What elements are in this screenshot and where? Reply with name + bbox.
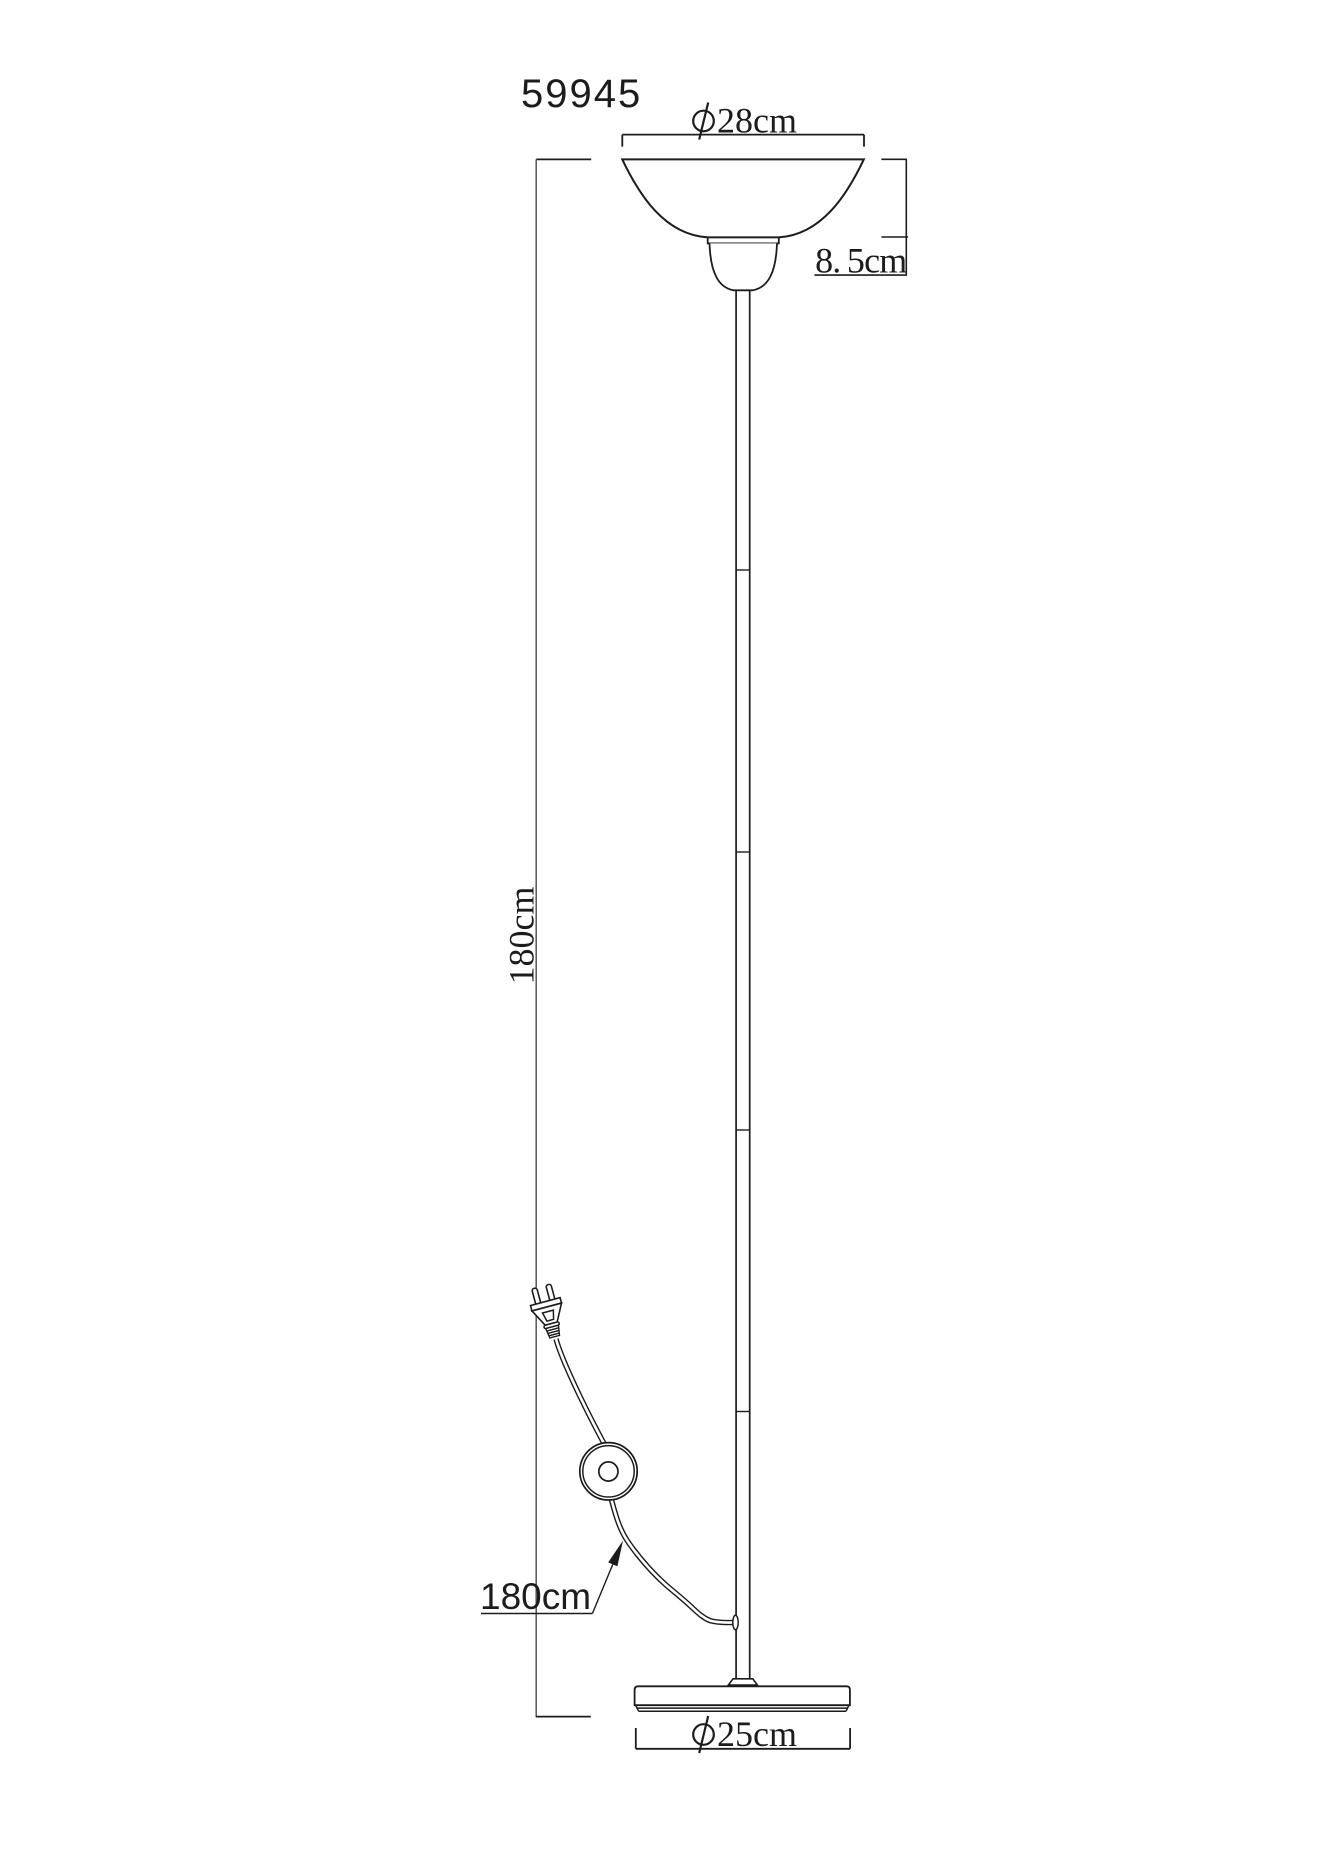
svg-text:25cm: 25cm	[717, 1714, 797, 1754]
svg-text:180cm: 180cm	[502, 887, 542, 985]
svg-text:28cm: 28cm	[717, 101, 797, 141]
svg-text:8. 5cm: 8. 5cm	[815, 241, 907, 281]
svg-text:59945: 59945	[521, 72, 642, 116]
svg-text:180cm: 180cm	[480, 1576, 591, 1617]
